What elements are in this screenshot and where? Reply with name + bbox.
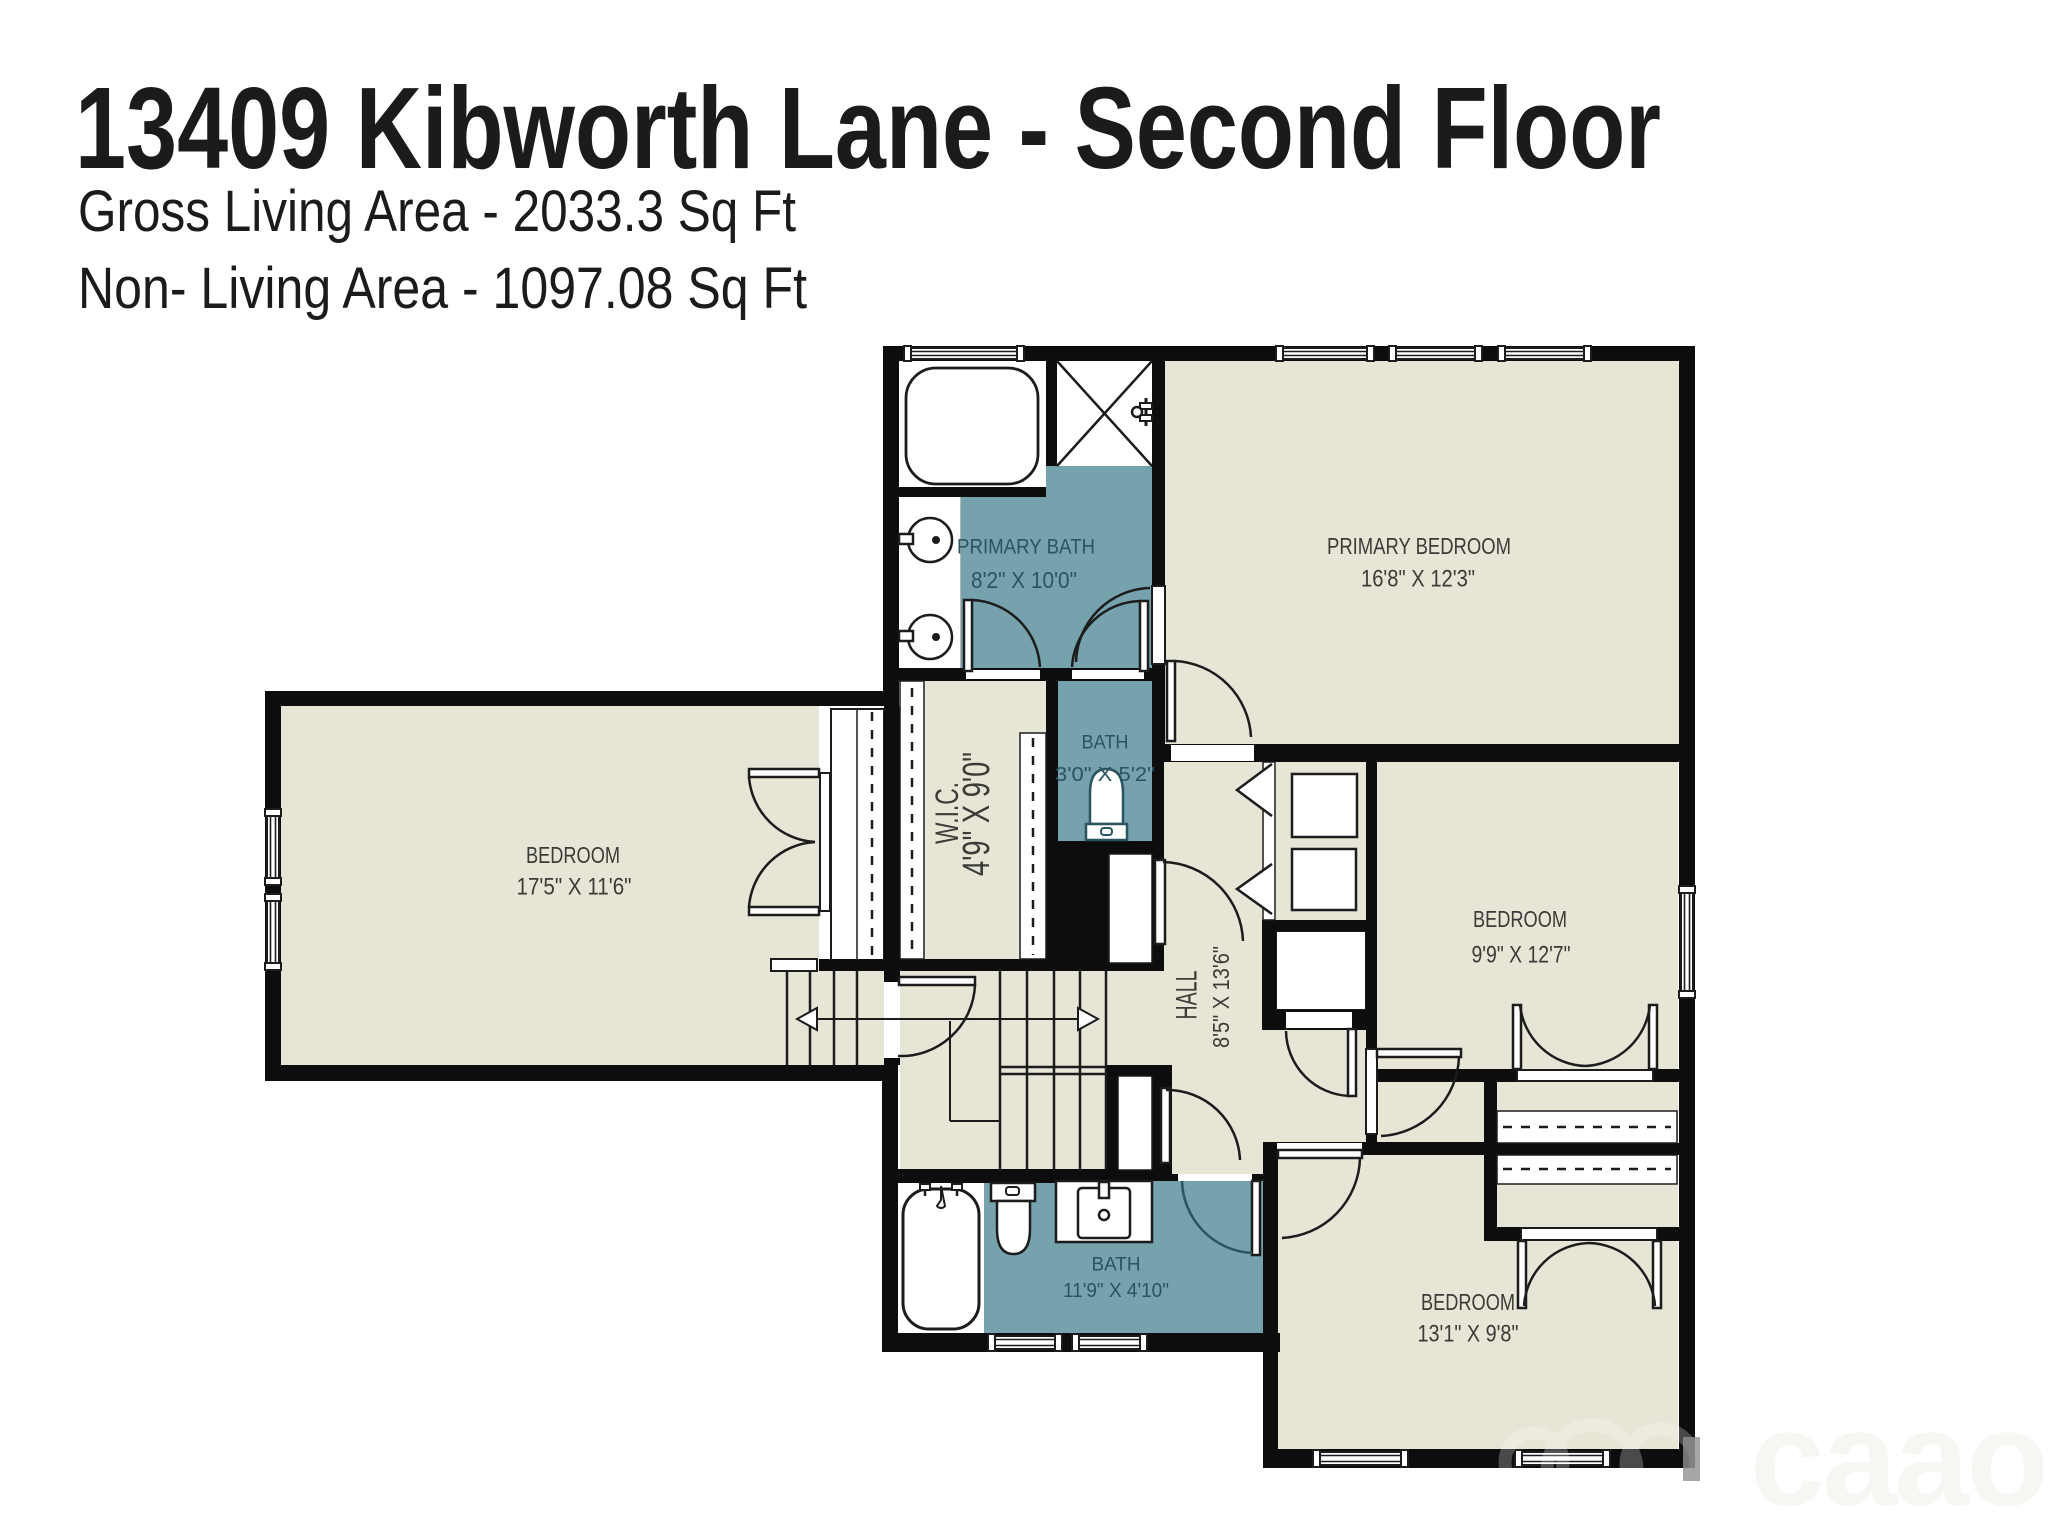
svg-text:Non- Living Area - 1097.08 Sq: Non- Living Area - 1097.08 Sq Ft [78,256,807,321]
svg-text:BEDROOM: BEDROOM [1473,906,1567,932]
svg-text:BATH: BATH [1092,1255,1141,1276]
svg-text:BEDROOM: BEDROOM [1421,1289,1515,1315]
svg-text:4'9" X 9'0": 4'9" X 9'0" [956,752,998,876]
svg-text:PRIMARY BEDROOM: PRIMARY BEDROOM [1327,533,1511,559]
svg-text:8'5" X 13'6": 8'5" X 13'6" [1208,946,1234,1048]
svg-text:8'2" X 10'0": 8'2" X 10'0" [971,567,1077,593]
svg-text:11'9" X 4'10": 11'9" X 4'10" [1063,1280,1169,1302]
svg-text:Gross Living Area - 2033.3 Sq: Gross Living Area - 2033.3 Sq Ft [78,179,796,244]
svg-text:17'5" X 11'6": 17'5" X 11'6" [517,874,632,901]
svg-text:BATH: BATH [1082,733,1129,754]
svg-text:caaol: caaol [1750,1383,2048,1534]
svg-text:HALL: HALL [1171,971,1204,1020]
svg-text:BEDROOM: BEDROOM [526,842,620,868]
svg-text:PRIMARY BATH: PRIMARY BATH [957,536,1095,559]
svg-text:13'1" X 9'8": 13'1" X 9'8" [1418,1321,1519,1348]
svg-text:13409 Kibworth Lane - Second F: 13409 Kibworth Lane - Second Floor [75,63,1661,193]
svg-text:9'9" X 12'7": 9'9" X 12'7" [1472,942,1571,969]
svg-text:16'8" X 12'3": 16'8" X 12'3" [1361,566,1475,593]
svg-text:3'0" X 5'2": 3'0" X 5'2" [1055,764,1155,786]
